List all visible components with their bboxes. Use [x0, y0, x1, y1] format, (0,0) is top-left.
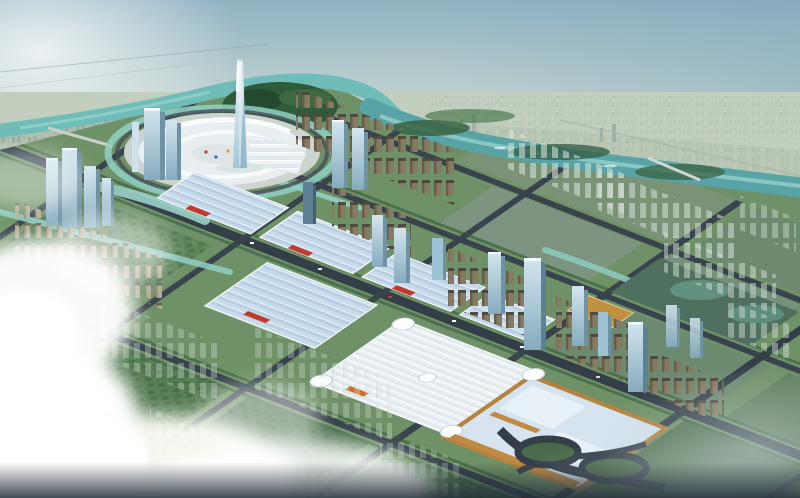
corridor-tower [628, 322, 648, 392]
plaza-west-tower-2 [166, 120, 181, 180]
corridor-tower [572, 286, 588, 346]
plaza-east-tower [332, 120, 348, 188]
corridor-tower [432, 238, 446, 280]
bank-trees-north [425, 109, 515, 123]
corridor-tower [394, 228, 410, 283]
bottom-vignette [0, 462, 800, 498]
corridor-tower [690, 318, 703, 358]
spike-tower [132, 122, 139, 172]
plaza-east-tower-2 [352, 128, 368, 190]
corridor-tower [303, 182, 316, 224]
corridor-tower [372, 215, 387, 267]
corridor-tower [488, 252, 505, 314]
corridor-tower [666, 305, 680, 347]
corridor-tower [598, 312, 611, 356]
aerial-render-canvas [0, 0, 800, 498]
landmark-blue-tower [524, 258, 546, 350]
city-masterplan-rendering [0, 0, 800, 498]
plaza-west-tower [144, 108, 165, 180]
